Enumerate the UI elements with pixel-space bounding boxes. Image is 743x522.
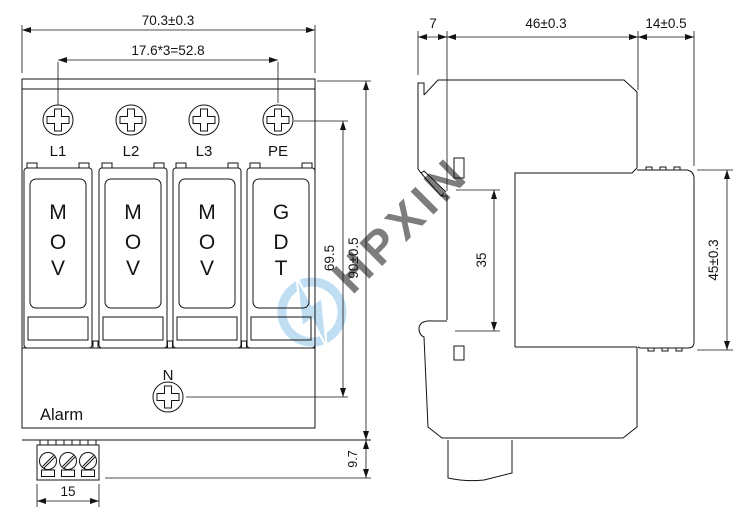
status-indicator-green xyxy=(103,317,163,340)
module-mov-1: M O V xyxy=(24,163,92,348)
svg-text:90±0.5: 90±0.5 xyxy=(346,237,361,278)
dim-base-offset: 9.7 xyxy=(105,440,371,478)
slotted-screw-icon xyxy=(80,453,97,470)
status-indicator-green xyxy=(28,317,88,340)
svg-text:35: 35 xyxy=(474,252,489,267)
neutral-terminal: N xyxy=(153,367,183,412)
svg-text:9.7: 9.7 xyxy=(346,450,360,467)
phillips-screw-icon-pe xyxy=(263,105,293,135)
module-letter: O xyxy=(50,231,66,254)
module-letter: V xyxy=(126,257,140,280)
phillips-screw-icon-l3 xyxy=(189,105,219,135)
module-gap-ribs xyxy=(93,341,247,348)
dim-rear-height: 45±0.3 xyxy=(697,170,733,350)
svg-text:45±0.3: 45±0.3 xyxy=(706,239,721,280)
drawing-svg: HPXIN L1 L2 L3 PE M O V xyxy=(0,0,743,522)
slotted-screw-icon xyxy=(60,453,77,470)
svg-text:15: 15 xyxy=(60,484,75,499)
module-letter: M xyxy=(124,201,142,224)
svg-text:69.5: 69.5 xyxy=(322,245,337,271)
module-letter: O xyxy=(125,231,141,254)
status-indicator-green xyxy=(177,317,237,340)
line-terminal-screws: L1 L2 L3 PE xyxy=(43,105,293,160)
terminal-label-l3: L3 xyxy=(196,143,213,160)
dim-module-pitch: 17.6*3=52.8 xyxy=(58,43,278,105)
module-letter: M xyxy=(49,201,67,224)
module-mov-3: M O V xyxy=(173,163,241,348)
terminal-label-l1: L1 xyxy=(50,143,67,160)
module-letter: D xyxy=(273,231,288,254)
front-view: L1 L2 L3 PE M O V M O V xyxy=(22,13,371,507)
module-letter: V xyxy=(200,257,214,280)
module-letter: V xyxy=(51,257,65,280)
phillips-screw-icon-l2 xyxy=(116,105,146,135)
svg-text:7: 7 xyxy=(429,16,437,31)
terminal-label-pe: PE xyxy=(268,143,288,160)
svg-text:14±0.5: 14±0.5 xyxy=(645,16,686,31)
module-letter: O xyxy=(199,231,215,254)
slotted-screw-icon xyxy=(40,453,57,470)
alarm-label: Alarm xyxy=(40,406,83,424)
phillips-screw-icon-l1 xyxy=(43,105,73,135)
svg-text:17.6*3=52.8: 17.6*3=52.8 xyxy=(131,43,204,58)
module-letter: T xyxy=(275,257,288,280)
dim-body-depth: 46±0.3 xyxy=(447,16,638,90)
module-letter: M xyxy=(198,201,216,224)
side-view: 7 46±0.3 14±0.5 35 45±0.3 xyxy=(418,16,733,481)
dimensional-drawing: HPXIN L1 L2 L3 PE M O V xyxy=(0,0,743,522)
svg-text:46±0.3: 46±0.3 xyxy=(525,16,566,31)
dim-rail-width: 35 xyxy=(455,190,500,331)
neutral-terminal-label: N xyxy=(163,367,174,384)
watermark: HPXIN xyxy=(265,139,485,359)
phillips-screw-icon-n xyxy=(153,382,183,412)
svg-text:70.3±0.3: 70.3±0.3 xyxy=(142,13,194,28)
module-letter: G xyxy=(273,201,289,224)
module-mov-2: M O V xyxy=(99,163,167,348)
terminal-label-l2: L2 xyxy=(123,143,140,160)
alarm-terminal-block xyxy=(37,440,99,480)
dim-rear-depth: 14±0.5 xyxy=(638,16,694,166)
dim-terminal-width: 15 xyxy=(37,484,99,507)
side-profile-outline xyxy=(418,80,694,481)
